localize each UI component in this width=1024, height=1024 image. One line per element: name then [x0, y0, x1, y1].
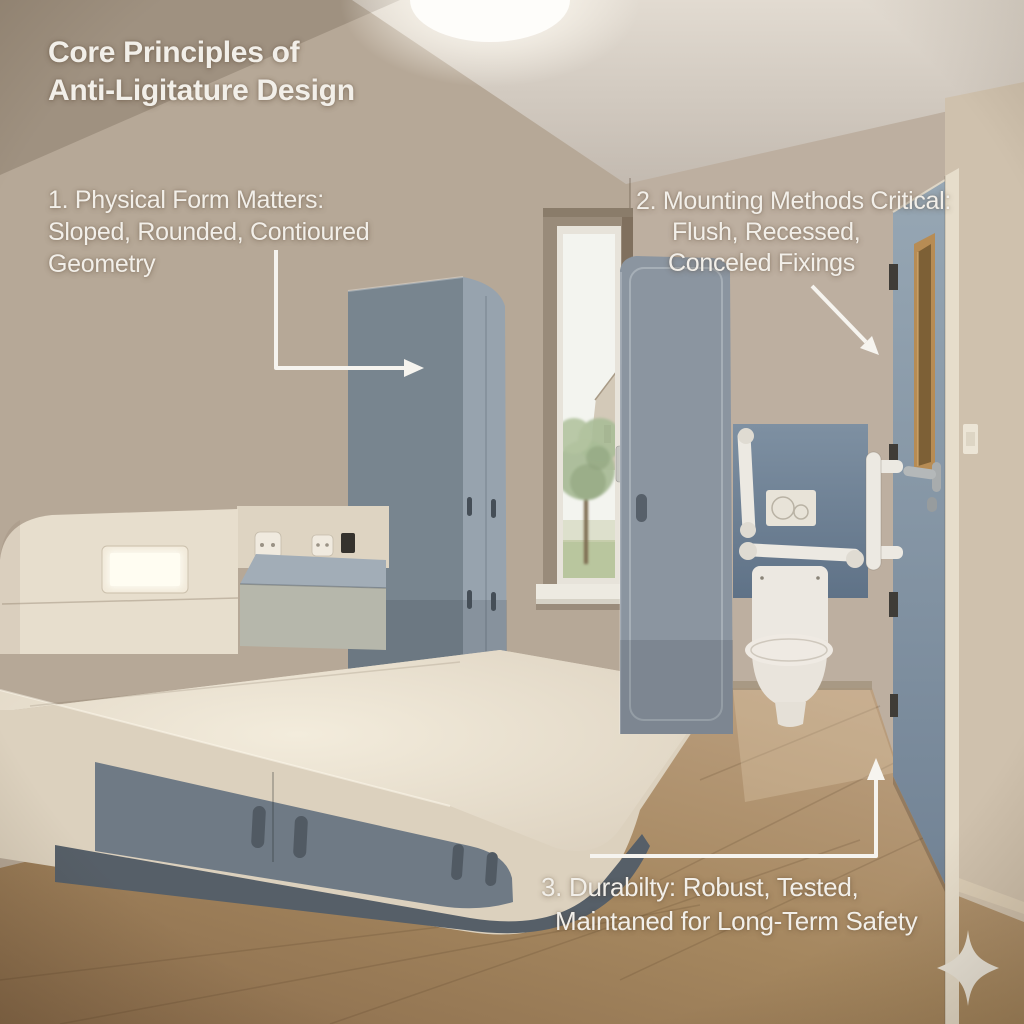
callout-2-line-1: 2. Mounting Methods Critical: [636, 186, 951, 217]
callout-durability: 3. Durabilty: Robust, Tested, Maintaned … [541, 870, 917, 938]
callout-mounting-methods: 2. Mounting Methods Critical: Flush, Rec… [636, 186, 951, 279]
title-line-2: Anti-Ligitature Design [48, 72, 355, 110]
callout-2-line-2: Flush, Recessed, [636, 217, 951, 248]
annotated-room-render: Core Principles of Anti-Ligitature Desig… [0, 0, 1024, 1024]
title-line-1: Core Principles of [48, 34, 355, 72]
callout-2-line-3: Conceled Fixings [636, 248, 951, 279]
callout-1-line-2: Sloped, Rounded, Contioured [48, 216, 369, 248]
callout-1-line-3: Geometry [48, 248, 369, 280]
callout-3-line-1: 3. Durabilty: Robust, Tested, [541, 870, 917, 904]
callout-3-line-2: Maintaned for Long-Term Safety [541, 904, 917, 938]
page-title: Core Principles of Anti-Ligitature Desig… [48, 34, 355, 110]
callout-1-line-1: 1. Physical Form Matters: [48, 184, 369, 216]
callout-physical-form: 1. Physical Form Matters: Sloped, Rounde… [48, 184, 369, 280]
